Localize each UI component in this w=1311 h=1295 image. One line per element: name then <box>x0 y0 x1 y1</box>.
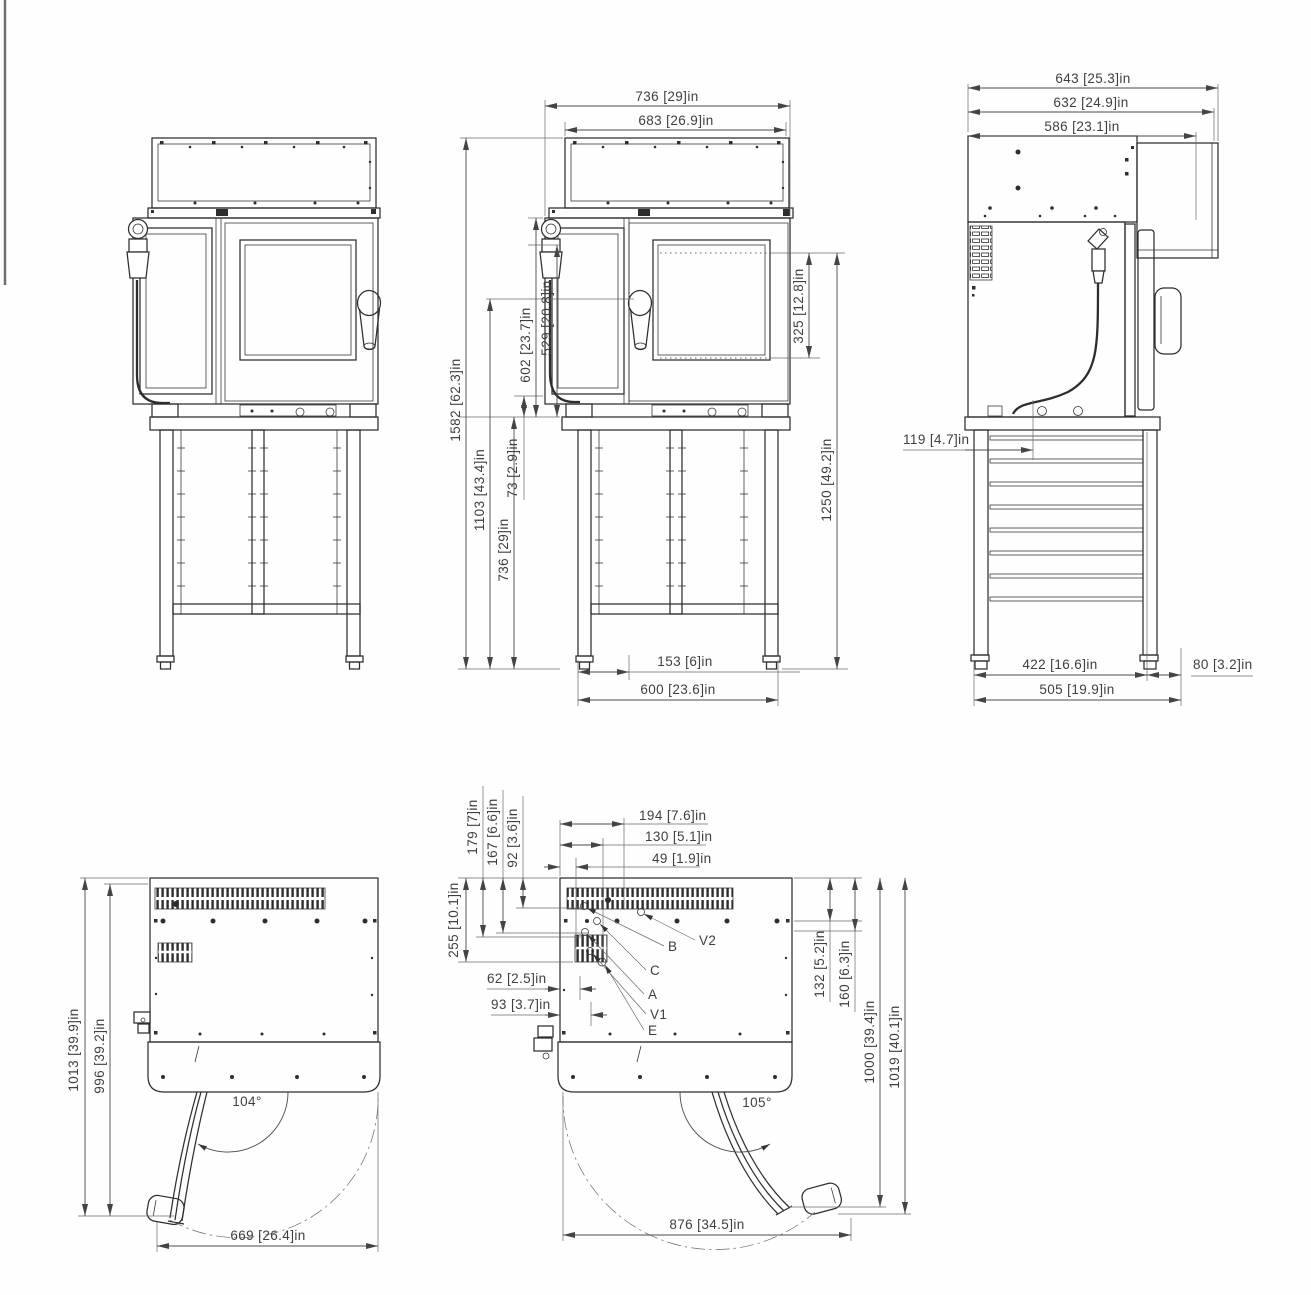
top-view-front-dimensions: 1013 [39.9]in 996 [39.2]in 669 [26.4]in <box>66 878 378 1252</box>
side-view-dimensions: 643 [25.3]in 632 [24.9]in 586 [23.1]in 1… <box>903 71 1253 706</box>
dim-label: 600 [23.6]in <box>640 682 715 697</box>
dim-label: 160 [6.3]in <box>837 940 852 1007</box>
dim-label: 62 [2.5]in <box>487 971 547 986</box>
front-view-hood <box>148 138 380 218</box>
dim-label: 736 [29]in <box>635 89 698 104</box>
side-view: 643 [25.3]in 632 [24.9]in 586 [23.1]in 1… <box>903 71 1253 706</box>
dim-label: 1250 [49.2]in <box>819 438 834 521</box>
top-view-connections: 105° B V2 C A V1 E 194 [7.6]in 130 [5.1]… <box>446 786 911 1250</box>
dim-label: 119 [4.7]in <box>903 432 969 447</box>
dim-label: 80 [3.2]in <box>1193 657 1253 672</box>
dim-label: 73 [2.9]in <box>505 438 520 498</box>
dim-label: 1582 [62.3]in <box>448 358 463 441</box>
dim-label: 669 [26.4]in <box>230 1228 305 1243</box>
dim-label: 325 [12.8]in <box>791 268 806 343</box>
dim-label: 683 [26.9]in <box>638 113 713 128</box>
dim-label: 422 [16.6]in <box>1022 657 1097 672</box>
connection-label: E <box>648 1023 657 1038</box>
dim-label: 255 [10.1]in <box>446 882 461 957</box>
connection-label: A <box>648 987 657 1002</box>
dim-label: 179 [7]in <box>465 799 480 854</box>
top-view-body <box>534 878 792 1059</box>
dim-label: 529 [20.8]in <box>539 280 554 355</box>
dim-label: 49 [1.9]in <box>652 851 712 866</box>
dim-label: 736 [29]in <box>496 518 511 581</box>
dim-label: 153 [6]in <box>657 654 712 669</box>
dim-label: 130 [5.1]in <box>645 829 712 844</box>
dim-label: 586 [23.1]in <box>1044 119 1119 134</box>
side-view-body <box>968 222 1181 417</box>
dim-label: 602 [23.7]in <box>518 307 533 382</box>
dim-label: 167 [6.6]in <box>485 798 500 865</box>
vent-grid <box>970 226 992 280</box>
dim-label: 505 [19.9]in <box>1039 682 1114 697</box>
connection-callouts: B V2 C A V1 E <box>587 908 716 1038</box>
dim-label: 1013 [39.9]in <box>66 1008 81 1091</box>
front-dim-oven-body <box>540 218 790 417</box>
top-view-rear-dimensions: 194 [7.6]in 130 [5.1]in 49 [1.9]in 92 [3… <box>446 786 911 1241</box>
dim-label: 132 [5.2]in <box>812 930 827 997</box>
dim-label: 996 [39.2]in <box>92 1018 107 1093</box>
open-door-handle <box>145 1194 185 1226</box>
dim-label: 643 [25.3]in <box>1055 71 1130 86</box>
top-view-body <box>134 878 378 1042</box>
side-view-stand <box>965 417 1160 669</box>
front-dim-hood <box>549 138 793 218</box>
angle-label: 104° <box>232 1094 262 1109</box>
technical-drawing-canvas: 736 [29]in 683 [26.9]in 1582 [62.3]in 11… <box>0 0 1311 1295</box>
dim-label: 1019 [40.1]in <box>887 1005 902 1088</box>
connection-label: V2 <box>699 933 716 948</box>
top-view-door-open: 104° 1013 [39.9]in 996 [39.2]in 669 [26.… <box>66 878 380 1252</box>
angle-label: 105° <box>742 1095 772 1110</box>
dim-label: 194 [7.6]in <box>639 808 706 823</box>
side-door-handle <box>1155 288 1181 354</box>
front-view <box>127 138 381 669</box>
dim-label: 632 [24.9]in <box>1053 95 1128 110</box>
dim-label: 92 [3.6]in <box>505 808 520 868</box>
hand-shower-top <box>134 1012 150 1033</box>
top-view-door: 104° <box>145 1042 380 1238</box>
hand-shower-side <box>1013 229 1108 415</box>
connection-label: V1 <box>650 1007 667 1022</box>
front-view-oven-body <box>127 218 381 417</box>
front-dim-stand <box>562 417 790 669</box>
open-door-handle <box>800 1181 843 1216</box>
hand-shower-top <box>534 1026 553 1059</box>
dim-label: 1103 [43.4]in <box>472 449 487 531</box>
front-view-stand <box>150 417 378 669</box>
dim-label: 93 [3.7]in <box>491 997 551 1012</box>
connection-label: B <box>668 939 677 954</box>
door-handle <box>358 291 381 350</box>
connection-label: C <box>650 963 660 978</box>
front-view-dimensioned: 736 [29]in 683 [26.9]in 1582 [62.3]in 11… <box>448 89 848 706</box>
dim-label: 876 [34.5]in <box>669 1217 744 1232</box>
dim-label: 1000 [39.4]in <box>862 1000 877 1083</box>
drawing-sheet: 736 [29]in 683 [26.9]in 1582 [62.3]in 11… <box>0 0 1311 1295</box>
